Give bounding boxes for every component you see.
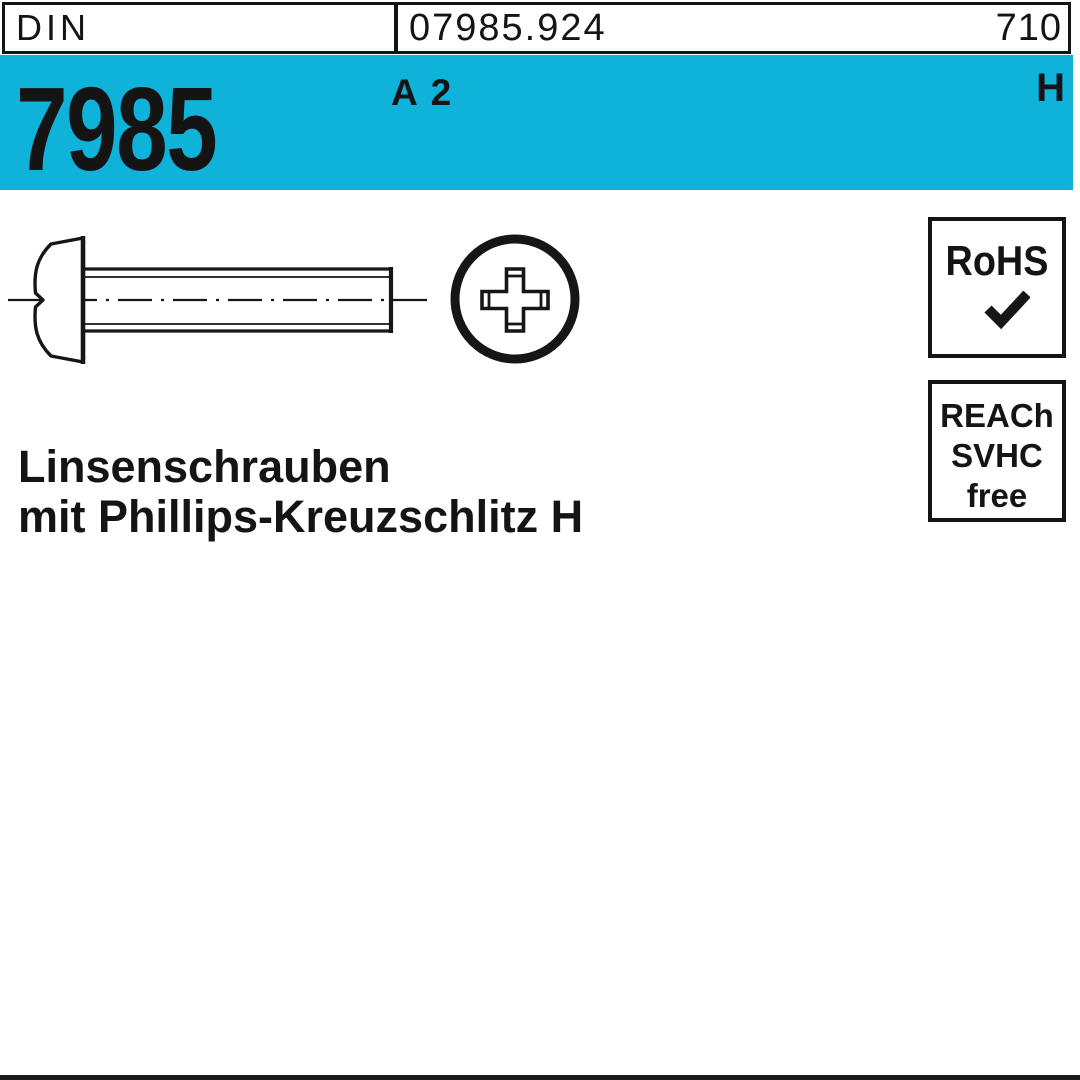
reach-badge: REACh SVHC free — [928, 380, 1066, 522]
standard-org-label: DIN — [16, 10, 90, 46]
reach-line-2: SVHC — [932, 436, 1062, 476]
screw-head — [35, 236, 83, 364]
product-description: Linsenschrauben mit Phillips-Kreuzschlit… — [18, 442, 583, 542]
standard-number: 7985 — [16, 70, 216, 189]
reach-line-1: REACh — [932, 396, 1062, 436]
article-number: 07985.924 — [409, 9, 607, 47]
material-grade-label: A 2 — [391, 74, 453, 111]
rohs-label: RoHS — [939, 240, 1056, 282]
catalog-page-number: 710 — [996, 9, 1062, 47]
header-strip: DIN 07985.924 710 — [2, 2, 1071, 54]
phillips-recess-front-view — [455, 239, 575, 359]
rohs-badge: RoHS — [928, 217, 1066, 358]
header-divider — [394, 5, 398, 51]
product-card: DIN 07985.924 710 7985 A 2 H — [0, 0, 1080, 1080]
product-name-line-1: Linsenschrauben — [18, 442, 583, 492]
product-name-line-2: mit Phillips-Kreuzschlitz H — [18, 492, 583, 542]
drive-symbol-label: H — [1036, 68, 1065, 108]
bottom-edge-bar — [0, 1075, 1080, 1080]
checkmark-icon — [984, 291, 1030, 329]
reach-line-3: free — [932, 476, 1062, 516]
standard-banner: 7985 A 2 H — [0, 55, 1073, 190]
reach-badge-text: REACh SVHC free — [932, 384, 1062, 518]
technical-drawing — [0, 200, 640, 400]
